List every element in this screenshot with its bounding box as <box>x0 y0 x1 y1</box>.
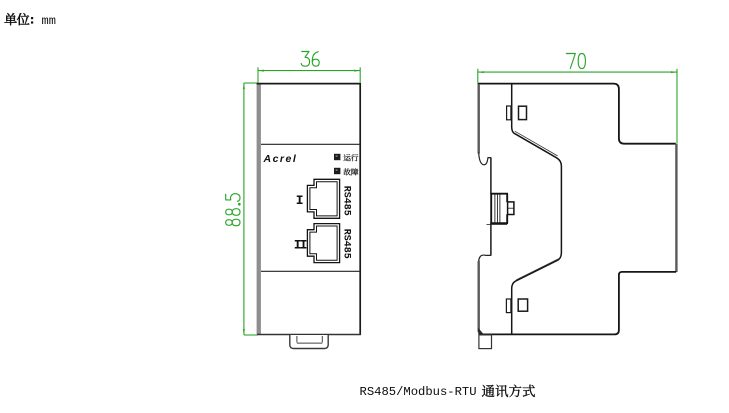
svg-text:RS485: RS485 <box>341 229 352 259</box>
svg-text:RS485/Modbus-RTU: RS485/Modbus-RTU <box>360 385 477 399</box>
svg-text:I: I <box>296 193 304 208</box>
svg-text:Acrel: Acrel <box>263 153 298 165</box>
svg-text:mm: mm <box>42 14 56 28</box>
svg-text:II: II <box>294 238 307 253</box>
svg-text:RS485: RS485 <box>341 186 352 216</box>
